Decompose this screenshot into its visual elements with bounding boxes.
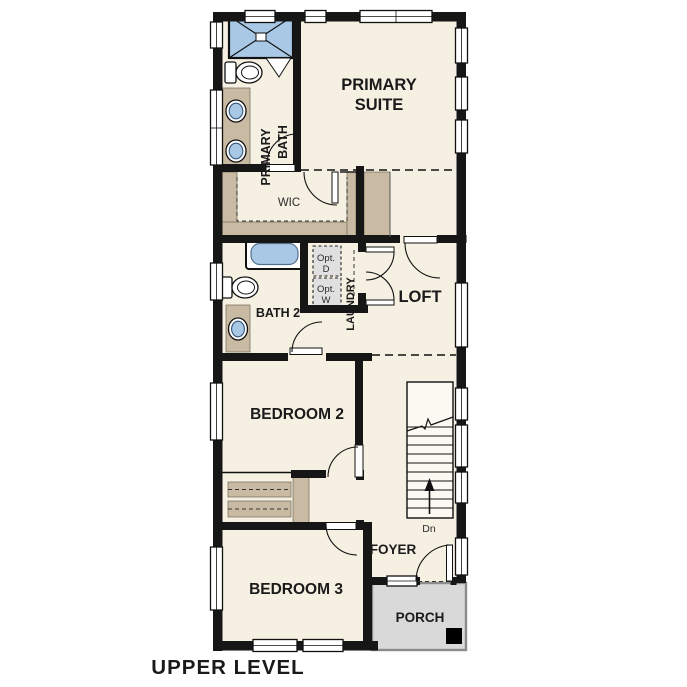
primary-bath-label: PRIMARY [259,128,273,186]
window [211,90,223,165]
wic-shelf-bottom [222,222,356,237]
wic-label: WIC [278,197,300,209]
stair-direction-label: Dn [422,523,436,535]
opt-washer-label: Opt. [317,284,335,295]
floor-plan: PRIMARY SUITE PRIMARY BATH WIC Opt. D Op… [0,0,687,687]
bath2-sink-icon [229,318,248,340]
window [456,472,468,503]
window [456,77,468,110]
foyer-label: FOYER [370,542,417,557]
primary-bath-label-2: BATH [276,125,290,159]
window [456,283,468,347]
window [360,11,432,23]
window [303,640,343,652]
bath2-toilet-icon [221,277,258,298]
plan-title: UPPER LEVEL [151,656,304,679]
window [456,538,468,575]
bedroom3-label: BEDROOM 3 [249,581,343,598]
opt-washer-label-2: W [322,295,331,306]
bathtub-fixture [246,239,303,269]
window [211,263,223,300]
porch-label: PORCH [396,610,445,625]
primary-suite-label-2: SUITE [355,96,404,114]
window [456,120,468,153]
laundry-label: LAUNDRY [345,277,357,331]
window [456,388,468,420]
bath2-label: BATH 2 [256,306,300,320]
loft-label: LOFT [398,288,441,306]
porch-post [446,628,462,644]
window [211,383,223,440]
window [253,640,297,652]
floor-area [213,12,466,651]
window [211,547,223,610]
primary-bath-toilet-icon [225,62,262,83]
window [305,11,326,23]
chase [364,172,390,237]
window [456,425,468,467]
opt-dryer-label: Opt. [317,253,335,264]
bedroom2-label: BEDROOM 2 [250,406,344,423]
opt-dryer-label-2: D [323,264,330,275]
window [387,576,417,586]
window [456,28,468,63]
primary-suite-label: PRIMARY [341,76,416,94]
wic-shelf-right [347,172,356,237]
window [245,11,275,23]
window [211,22,223,48]
stairs [407,382,453,518]
closet-divider [293,473,309,527]
